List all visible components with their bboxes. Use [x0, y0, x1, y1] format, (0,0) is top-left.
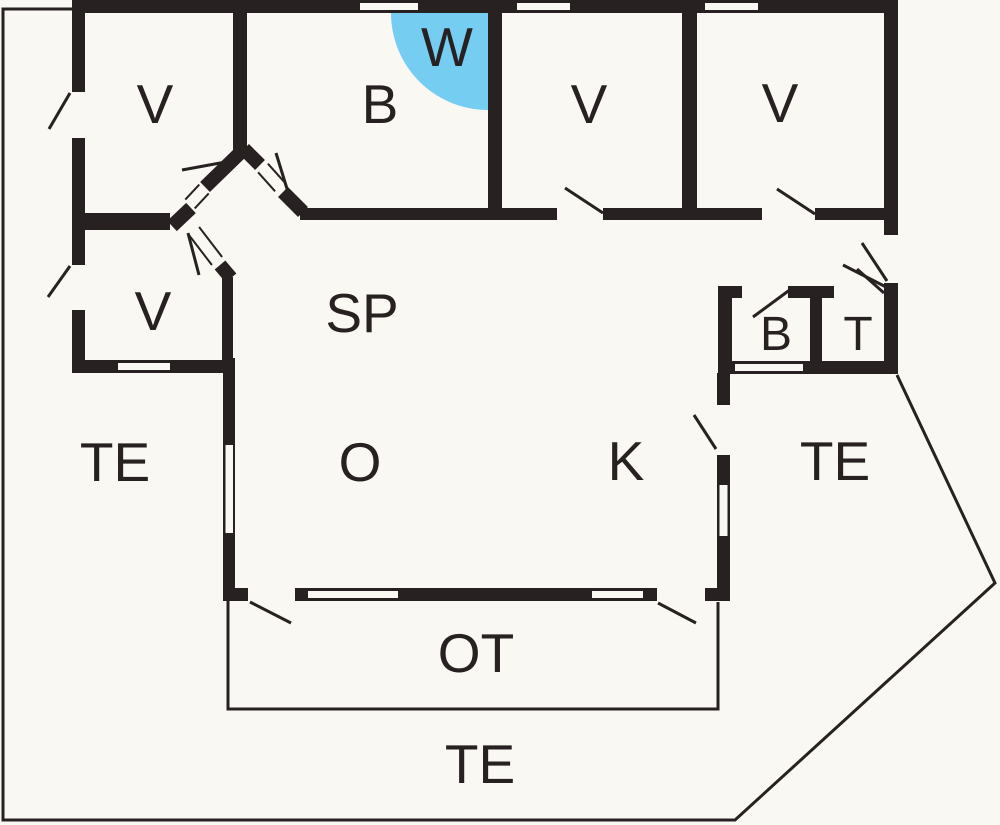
wall-vmid-bottom-right	[603, 208, 682, 220]
room-label-w: W	[421, 16, 473, 78]
wall-entry-diagonal-sw-stub	[220, 265, 231, 278]
room-label-te-bottom: TE	[445, 733, 515, 795]
wall-left-exterior-upper	[72, 9, 85, 92]
wall-toilet-right	[884, 283, 898, 374]
wall-bath-left	[718, 286, 732, 374]
wall-vmid-bottom-left	[502, 208, 557, 220]
wall-right-exterior	[884, 0, 898, 235]
room-label-k: K	[608, 430, 645, 492]
wall-bath-toilet-divider	[810, 288, 822, 374]
wall-bathroom-vmid-divider	[488, 13, 502, 220]
room-label-ot: OT	[438, 622, 514, 684]
floor-plan-svg: V B W V V V SP TE O K B T TE OT TE	[0, 0, 1000, 825]
window-vmid-top	[517, 3, 570, 10]
window-bath-bottom	[735, 364, 803, 371]
wall-kitchen-right-upper	[717, 373, 730, 405]
window-living-left	[226, 445, 234, 533]
window-vright-top	[705, 3, 758, 10]
room-label-v-top-mid: V	[571, 73, 608, 135]
room-label-v-top-right: V	[762, 72, 799, 134]
room-label-t: T	[843, 308, 872, 361]
wall-left-exterior-mid	[72, 138, 85, 265]
window-living-bottom-2	[592, 591, 643, 598]
room-label-te-right: TE	[800, 430, 870, 492]
wall-left-exterior-lower	[72, 310, 85, 373]
wall-vtopleft-bathroom-divider	[233, 13, 247, 152]
window-kitchen-right	[720, 485, 728, 536]
wall-kitchen-bottom-corner	[705, 588, 730, 601]
wall-vmid-vright-divider	[682, 13, 697, 220]
room-label-b-top: B	[362, 73, 399, 135]
room-label-o: O	[339, 431, 382, 493]
room-label-sp: SP	[325, 282, 398, 344]
floor-plan-page: V B W V V V SP TE O K B T TE OT TE	[0, 0, 1000, 825]
wall-vtopleft-bottom	[85, 213, 170, 230]
window-vlower-bottom	[118, 363, 170, 370]
room-label-te-left: TE	[80, 431, 150, 493]
wall-vright-bottom-right	[815, 208, 887, 220]
room-label-v-lower-left: V	[135, 280, 172, 342]
wall-bathroom-bottom	[300, 208, 488, 220]
room-label-v-top-left: V	[137, 73, 174, 135]
wall-top-exterior	[72, 0, 898, 13]
wall-vright-bottom-left	[697, 208, 762, 220]
room-label-b-small: B	[760, 308, 792, 361]
window-bathroom-top	[360, 3, 418, 10]
window-living-bottom-1	[308, 591, 398, 598]
